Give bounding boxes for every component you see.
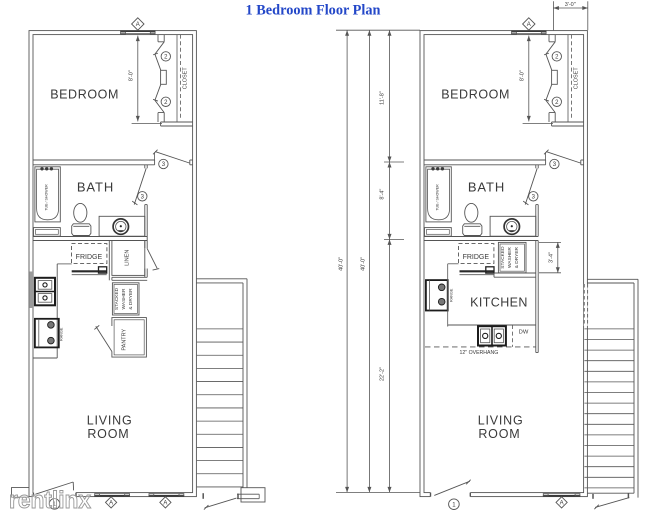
svg-text:LINEN: LINEN <box>125 250 131 266</box>
svg-text:WASHER: WASHER <box>121 288 127 309</box>
svg-text:RANGE: RANGE <box>450 288 454 302</box>
svg-text:3'-4": 3'-4" <box>549 252 555 263</box>
svg-text:TUB / SHOWER: TUB / SHOWER <box>45 184 49 211</box>
svg-text:FRIDGE: FRIDGE <box>463 254 490 261</box>
svg-text:BEDROOM: BEDROOM <box>441 88 510 102</box>
svg-text:PANTRY: PANTRY <box>121 328 127 350</box>
svg-text:1 Bedroom Floor Plan: 1 Bedroom Floor Plan <box>246 2 381 18</box>
svg-text:40'-0": 40'-0" <box>361 257 367 271</box>
svg-text:& DRYER: & DRYER <box>514 246 520 268</box>
svg-text:A: A <box>527 22 531 28</box>
svg-text:WASHER: WASHER <box>507 247 513 268</box>
svg-text:BATH: BATH <box>468 180 505 195</box>
svg-text:rentlinx: rentlinx <box>9 487 91 514</box>
svg-text:DW: DW <box>519 330 529 336</box>
svg-text:TUB / SHOWER: TUB / SHOWER <box>436 184 440 211</box>
svg-text:BEDROOM: BEDROOM <box>50 88 119 102</box>
svg-text:ROOM: ROOM <box>87 427 129 441</box>
svg-text:LIVING: LIVING <box>478 413 524 427</box>
svg-text:STACKED: STACKED <box>500 246 506 269</box>
svg-text:3'-0": 3'-0" <box>565 2 576 8</box>
svg-text:A: A <box>136 22 140 28</box>
svg-text:BATH: BATH <box>77 180 114 195</box>
svg-text:& DRYER: & DRYER <box>128 288 134 310</box>
svg-text:40'-0": 40'-0" <box>338 257 344 271</box>
svg-text:STACKED: STACKED <box>114 287 120 310</box>
svg-text:A: A <box>560 501 564 507</box>
svg-text:A: A <box>163 501 167 507</box>
svg-text:CLOSET: CLOSET <box>573 67 579 90</box>
svg-text:22'-2": 22'-2" <box>380 367 386 381</box>
svg-text:ROOM: ROOM <box>478 427 520 441</box>
svg-text:8'-0": 8'-0" <box>129 70 135 81</box>
svg-text:FRIDGE: FRIDGE <box>76 254 103 261</box>
svg-text:A: A <box>109 501 113 507</box>
svg-text:8'-4": 8'-4" <box>380 189 386 200</box>
svg-text:LIVING: LIVING <box>87 413 133 427</box>
svg-text:RANGE: RANGE <box>60 327 64 341</box>
svg-text:12" OVERHANG: 12" OVERHANG <box>460 350 499 356</box>
svg-text:CLOSET: CLOSET <box>182 67 188 90</box>
svg-text:KITCHEN: KITCHEN <box>470 295 528 309</box>
svg-text:11'-8": 11'-8" <box>380 91 386 105</box>
svg-text:8'-0": 8'-0" <box>520 70 526 81</box>
